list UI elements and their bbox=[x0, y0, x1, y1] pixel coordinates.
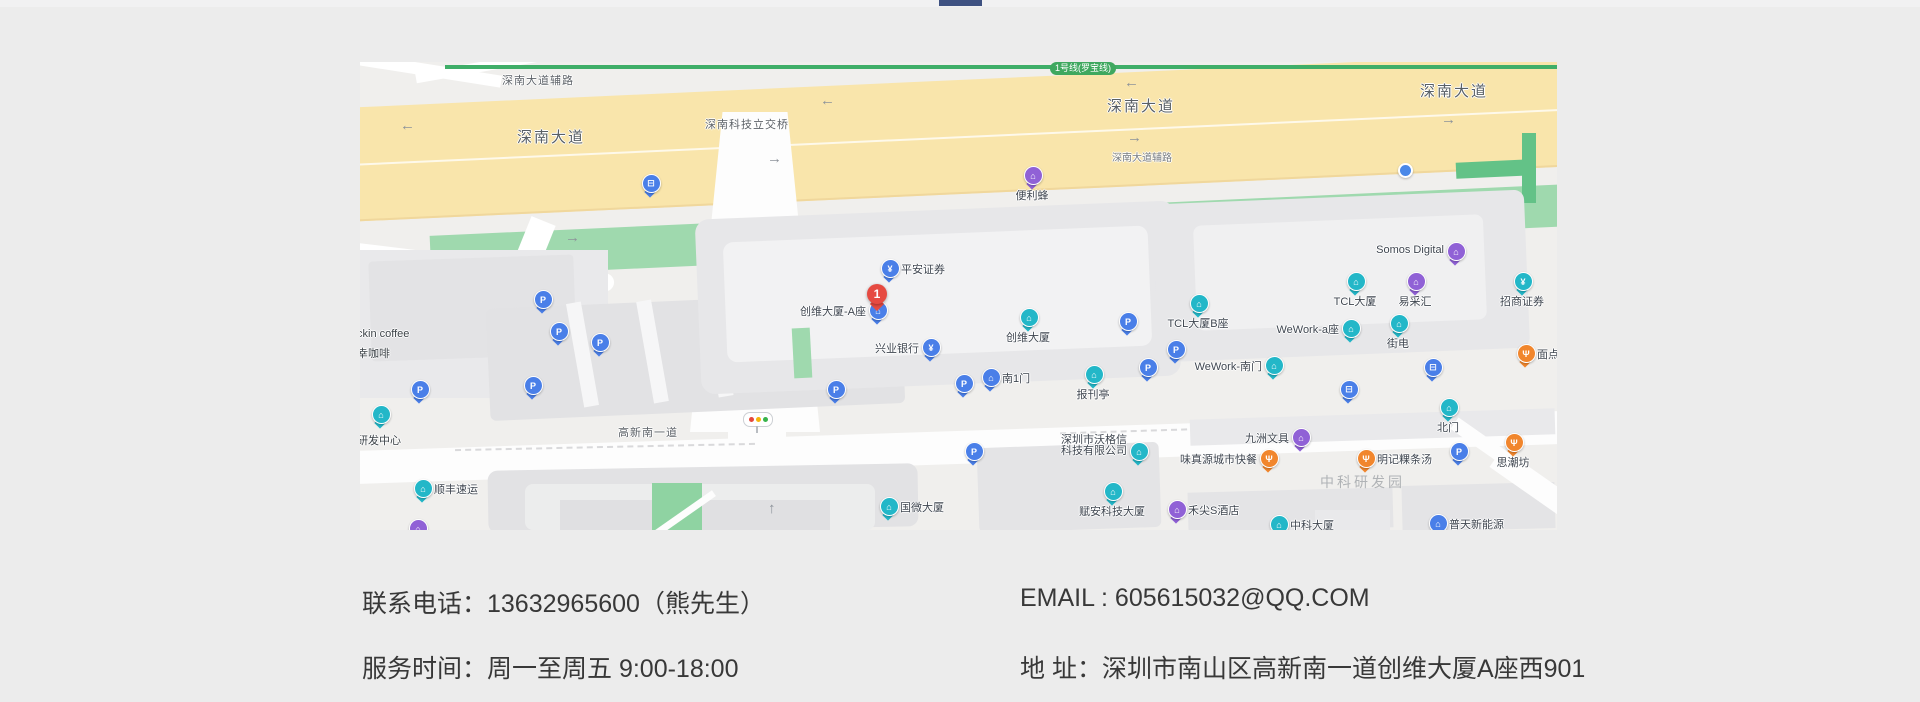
building-icon: ⌂ bbox=[414, 479, 433, 498]
building-icon: ⌂ bbox=[1447, 242, 1466, 261]
building-icon: ⌂ bbox=[1429, 514, 1448, 530]
poi-label: 国微大厦 bbox=[900, 499, 944, 515]
poi-label: 南1门 bbox=[1002, 370, 1030, 386]
road-label: 深南科技立交桥 bbox=[705, 116, 789, 132]
poi-label: 禾尖S酒店 bbox=[1188, 502, 1239, 518]
right-arrow-icon: → bbox=[1127, 129, 1142, 146]
traffic-light-icon bbox=[743, 412, 773, 434]
food-icon: Ψ bbox=[1505, 433, 1524, 452]
map-canvas[interactable]: 1号线(罗宝线) 深南大道辅路深南大道深南科技立交桥深南大道深南大道辅路深南大道… bbox=[360, 62, 1557, 530]
right-arrow-icon: → bbox=[1441, 111, 1456, 128]
poi-label: 兴业银行 bbox=[875, 340, 919, 356]
poi-label: 顺丰速运 bbox=[434, 481, 478, 497]
contact-phone: 联系电话：13632965600（熊先生） bbox=[362, 584, 765, 620]
food-icon: Ψ bbox=[1357, 449, 1376, 468]
parking-icon: P bbox=[1167, 340, 1186, 359]
up-arrow-icon: ↑ bbox=[768, 500, 776, 517]
road-label: 高新南一道 bbox=[618, 424, 678, 440]
marker-number: 1 bbox=[867, 284, 887, 304]
poi-label: 味真源城市快餐 bbox=[1180, 451, 1257, 467]
parking-icon: P bbox=[965, 442, 984, 461]
poi-label: 平安证券 bbox=[901, 261, 945, 277]
building-icon: ⌂ bbox=[409, 519, 428, 530]
parking-icon: P bbox=[1139, 358, 1158, 377]
right-arrow-icon: → bbox=[767, 150, 782, 167]
poi-label: 中科大厦 bbox=[1290, 517, 1334, 530]
parking-icon: P bbox=[591, 333, 610, 352]
parking-icon: P bbox=[1450, 442, 1469, 461]
map-building bbox=[1193, 214, 1487, 331]
road-label: 深南大道辅路 bbox=[1112, 149, 1172, 164]
road-label: ckin coffee bbox=[360, 328, 409, 340]
parking-icon: P bbox=[550, 322, 569, 341]
poi-label: WeWork-南门 bbox=[1195, 358, 1262, 374]
building-icon: ⌂ bbox=[1390, 314, 1409, 333]
parking-icon: P bbox=[411, 380, 430, 399]
parking-icon: P bbox=[534, 290, 553, 309]
road-label: 想研发中心 bbox=[360, 432, 401, 448]
building-icon: ⌂ bbox=[1085, 365, 1104, 384]
poi-label: 普天新能源 bbox=[1449, 516, 1504, 530]
parking-icon: P bbox=[524, 376, 543, 395]
map-green-dark bbox=[1522, 133, 1536, 203]
left-arrow-icon: ← bbox=[820, 92, 835, 109]
poi-label: 深圳市沃格信科技有限公司 bbox=[1051, 435, 1127, 457]
contact-page: 1号线(罗宝线) 深南大道辅路深南大道深南科技立交桥深南大道深南大道辅路深南大道… bbox=[0, 0, 1920, 702]
bus-icon: ⊟ bbox=[1340, 380, 1359, 399]
building-icon: ⌂ bbox=[982, 368, 1001, 387]
building-icon: ⌂ bbox=[880, 497, 899, 516]
building-icon: ⌂ bbox=[1265, 356, 1284, 375]
bank-icon: ¥ bbox=[1514, 272, 1533, 291]
road-label: 中科研发园 bbox=[1320, 472, 1405, 492]
building-icon: ⌂ bbox=[1440, 398, 1459, 417]
contact-address: 地 址：深圳市南山区高新南一道创维大厦A座西901 bbox=[1020, 649, 1585, 685]
road-label: 幸咖啡 bbox=[360, 345, 390, 361]
food-icon: Ψ bbox=[1260, 449, 1279, 468]
building-icon: ⌂ bbox=[1407, 272, 1426, 291]
metro-line-1 bbox=[445, 65, 1557, 69]
contact-email: EMAIL : 605615032@QQ.COM bbox=[1020, 584, 1370, 613]
building-icon: ⌂ bbox=[1024, 166, 1043, 185]
road-label: 深南大道 bbox=[1107, 95, 1175, 116]
bus-icon: ⊟ bbox=[642, 174, 661, 193]
poi-label: WeWork-a座 bbox=[1276, 321, 1339, 337]
metro-station-dot[interactable] bbox=[1398, 163, 1413, 178]
building-icon: ⌂ bbox=[1104, 482, 1123, 501]
map-marker-1[interactable]: 1 bbox=[866, 284, 888, 314]
bank-icon: ¥ bbox=[881, 259, 900, 278]
building-icon: ⌂ bbox=[1130, 442, 1149, 461]
building-icon: ⌂ bbox=[1347, 272, 1366, 291]
parking-icon: P bbox=[955, 374, 974, 393]
building-icon: ⌂ bbox=[1270, 515, 1289, 530]
building-icon: ⌂ bbox=[1168, 500, 1187, 519]
parking-icon: P bbox=[1119, 312, 1138, 331]
map-green-dark bbox=[1456, 159, 1532, 178]
bus-icon: ⊟ bbox=[1424, 358, 1443, 377]
top-accent-bar bbox=[939, 0, 982, 6]
food-icon: Ψ bbox=[1517, 344, 1536, 363]
left-arrow-icon: ← bbox=[1124, 74, 1139, 91]
road-label: 深南大道 bbox=[517, 126, 585, 147]
building-icon: ⌂ bbox=[1342, 319, 1361, 338]
bank-icon: ¥ bbox=[922, 338, 941, 357]
building-icon: ⌂ bbox=[1020, 308, 1039, 327]
building-icon: ⌂ bbox=[372, 405, 391, 424]
metro-line-badge: 1号线(罗宝线) bbox=[1050, 62, 1116, 75]
poi-label: Somos Digital bbox=[1376, 244, 1444, 256]
poi-label: 创维大厦-A座 bbox=[800, 303, 866, 319]
map-green-patch bbox=[792, 328, 813, 379]
right-arrow-icon: → bbox=[565, 229, 580, 246]
contact-hours: 服务时间：周一至周五 9:00-18:00 bbox=[362, 649, 739, 685]
road-label: 深南大道辅路 bbox=[502, 72, 574, 88]
poi-label: 明记粿条汤 bbox=[1377, 451, 1432, 467]
road-label: 深南大道 bbox=[1420, 80, 1488, 101]
building-icon: ⌂ bbox=[1292, 428, 1311, 447]
left-arrow-icon: ← bbox=[400, 117, 415, 134]
building-icon: ⌂ bbox=[1190, 294, 1209, 313]
parking-icon: P bbox=[827, 380, 846, 399]
poi-label: 九洲文具 bbox=[1245, 430, 1289, 446]
poi-label: 面点 bbox=[1537, 346, 1557, 362]
